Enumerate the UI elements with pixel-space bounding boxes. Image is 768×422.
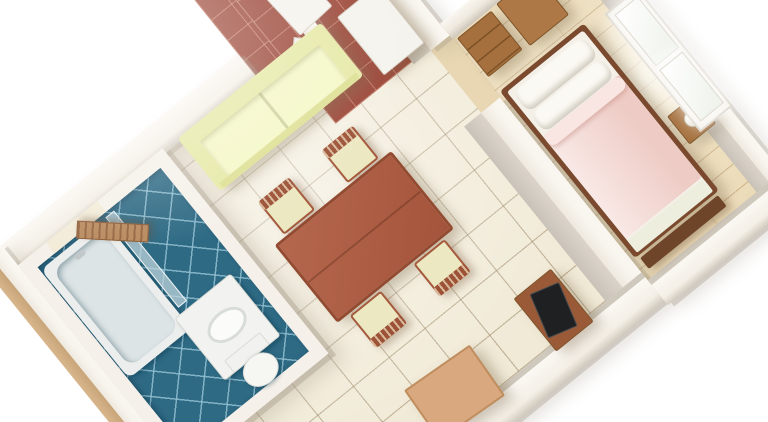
floorplan-render [0, 0, 768, 422]
bathroom-wooden-door [76, 221, 149, 243]
